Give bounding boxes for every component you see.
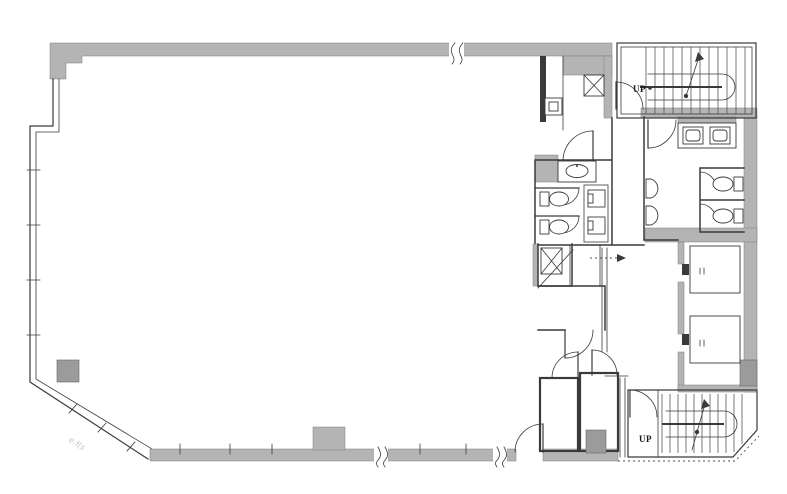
elevator-car xyxy=(690,316,740,363)
stair-upper-label: UP xyxy=(633,84,646,94)
elevator-door xyxy=(682,334,689,345)
vanity-sinks-icon xyxy=(678,123,736,148)
door-arc xyxy=(515,424,543,452)
duct-block xyxy=(586,430,606,453)
column xyxy=(740,360,757,386)
right-wall xyxy=(744,116,757,392)
staircase-upper: UP xyxy=(616,43,756,118)
stair-treads xyxy=(646,47,745,114)
main-room: e.f(s xyxy=(57,360,87,452)
service-room xyxy=(538,286,605,330)
stair-direction-arrow xyxy=(648,52,704,98)
toilet-icon xyxy=(540,220,569,234)
service-room xyxy=(570,245,600,286)
stair-lower-label: UP xyxy=(639,434,652,444)
bottom-rooms xyxy=(515,350,618,453)
urinal-icon xyxy=(646,206,658,225)
column xyxy=(57,360,79,382)
top-wall xyxy=(50,43,612,79)
bottom-wall xyxy=(150,449,516,461)
door-arc xyxy=(630,390,657,417)
left-window-wall xyxy=(30,79,148,459)
sink-icon xyxy=(558,161,596,182)
urinal-icon xyxy=(646,179,658,198)
wall-break-icon xyxy=(374,445,388,467)
toilet-icon xyxy=(540,192,569,206)
elevator-door xyxy=(682,264,689,275)
wall-annotation: e.f(s xyxy=(67,435,87,452)
floor-plan-canvas: UP UP xyxy=(0,0,787,494)
mop-closet xyxy=(533,244,573,288)
urinal-icon xyxy=(584,185,608,242)
toilet-icon xyxy=(713,177,743,191)
floor-plan-page: UP UP xyxy=(0,0,787,494)
door-arc xyxy=(592,350,617,375)
staircase-lower: UP xyxy=(618,390,759,461)
wall-break-icon xyxy=(449,40,464,64)
restroom-right xyxy=(644,117,744,240)
entry-arrow-icon xyxy=(590,254,626,262)
door-arc xyxy=(648,120,676,148)
exterior-walls xyxy=(27,40,757,467)
bottom-wall-column xyxy=(313,427,345,450)
window-mullions-left xyxy=(27,170,135,451)
elevator-bank xyxy=(590,246,740,376)
service-room xyxy=(540,378,578,451)
wall-break-icon xyxy=(493,445,507,467)
toilet-icon xyxy=(713,209,743,223)
door-arc xyxy=(563,131,593,161)
service-fixture-icon xyxy=(545,98,562,115)
duct-shaft-icon xyxy=(584,75,604,96)
elevator-car xyxy=(690,246,740,293)
